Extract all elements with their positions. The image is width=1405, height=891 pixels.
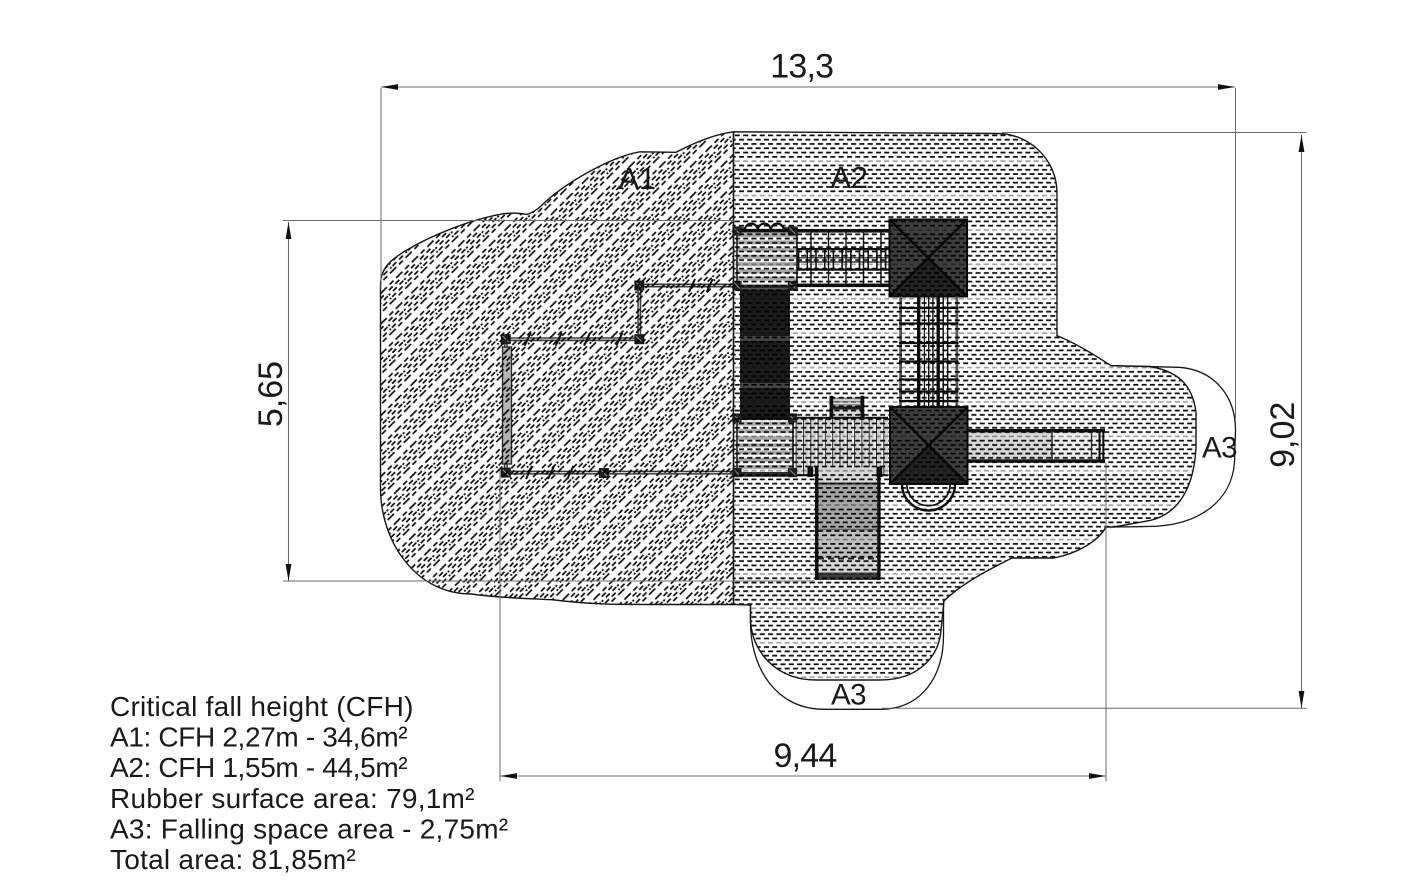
svg-text:A2: CFH 1,55m - 44,5m²: A2: CFH 1,55m - 44,5m² [110, 752, 407, 783]
svg-text:9,44: 9,44 [774, 737, 837, 775]
svg-text:Total area: 81,85m²: Total area: 81,85m² [110, 844, 356, 875]
svg-text:A1: A1 [619, 161, 656, 196]
svg-text:5,65: 5,65 [252, 361, 290, 427]
svg-text:Critical fall height (CFH): Critical fall height (CFH) [110, 691, 414, 722]
svg-text:13,3: 13,3 [770, 48, 833, 86]
svg-text:Rubber surface area: 79,1m²: Rubber surface area: 79,1m² [110, 783, 475, 814]
svg-text:9,02: 9,02 [1264, 402, 1302, 468]
svg-text:A2: A2 [831, 160, 868, 195]
svg-text:A3: Falling space area - 2,75m: A3: Falling space area - 2,75m² [110, 813, 508, 844]
svg-text:A3: A3 [1202, 432, 1237, 465]
svg-text:A1: CFH 2,27m - 34,6m²: A1: CFH 2,27m - 34,6m² [110, 722, 407, 753]
svg-text:A3: A3 [831, 679, 866, 712]
